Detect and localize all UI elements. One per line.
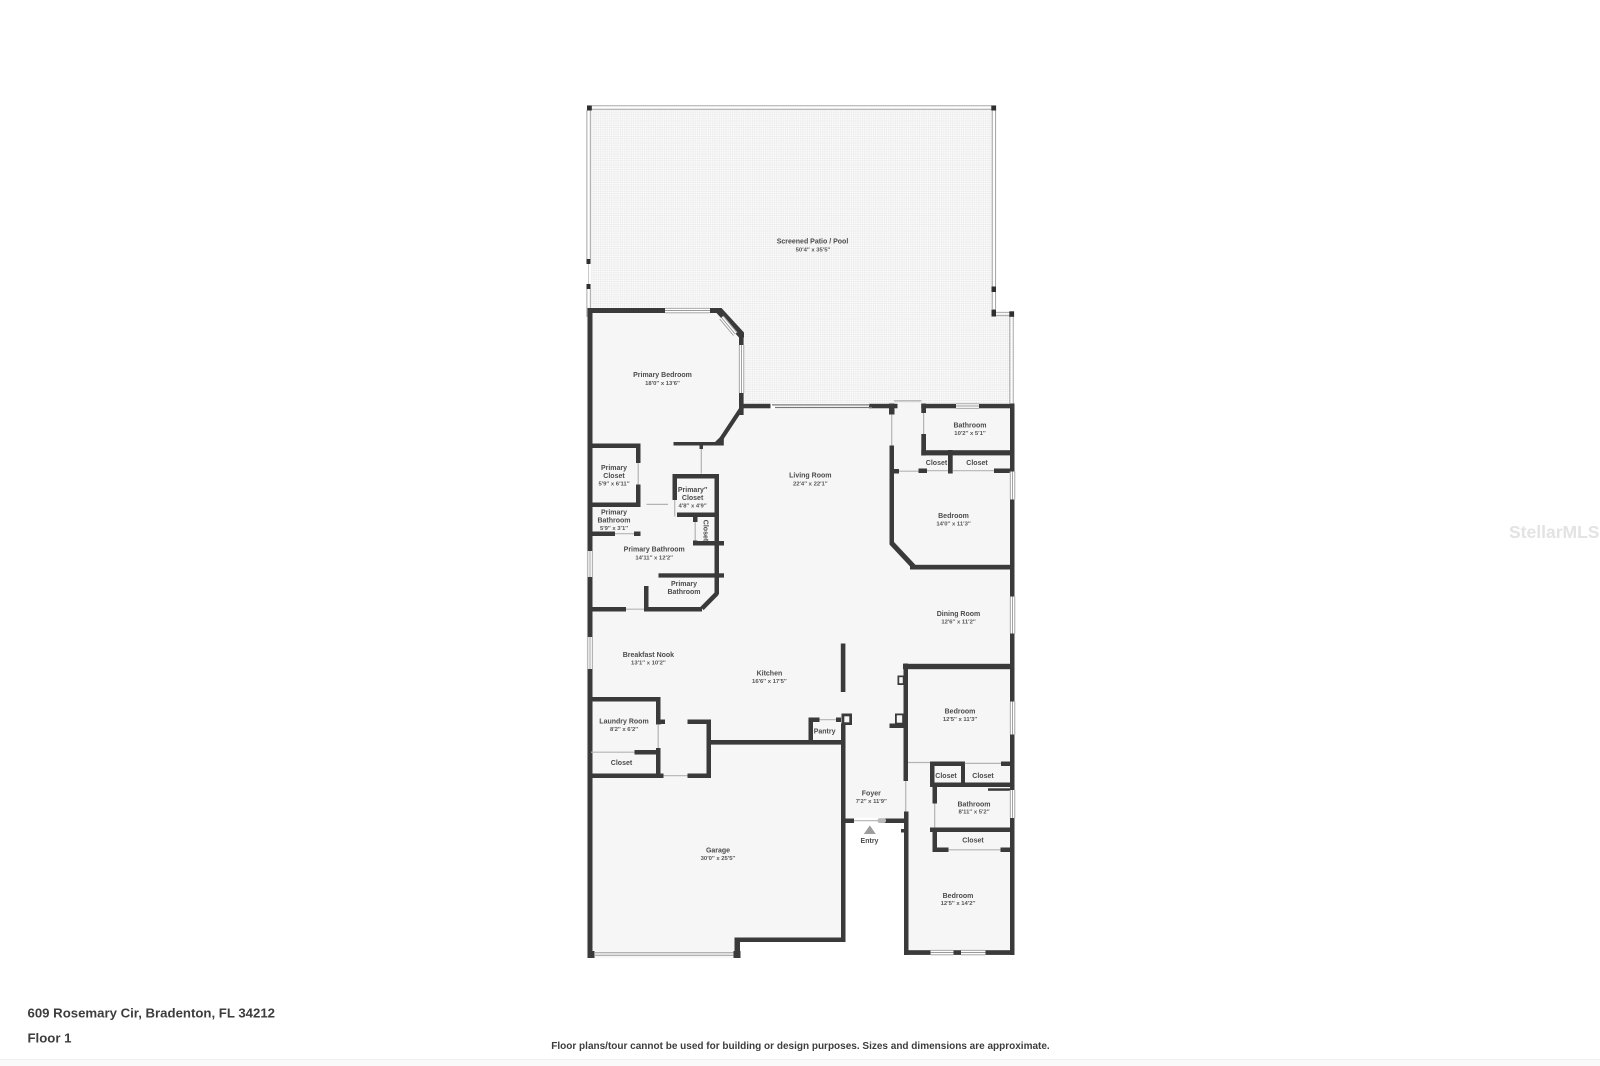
svg-text:Floor plans/tour cannot be use: Floor plans/tour cannot be used for buil… (551, 1041, 1050, 1052)
svg-text:Dining Room: Dining Room (937, 611, 981, 618)
svg-text:Closet: Closet (926, 460, 948, 467)
svg-text:Bedroom: Bedroom (938, 513, 969, 520)
svg-text:Bedroom: Bedroom (943, 893, 974, 900)
svg-text:Primary: Primary (601, 465, 627, 472)
svg-text:Closet: Closet (603, 473, 625, 480)
svg-text:StellarMLS: StellarMLS (1509, 522, 1599, 542)
svg-text:Primary: Primary (601, 510, 627, 517)
svg-text:Bathroom: Bathroom (953, 423, 986, 430)
svg-text:12′5″ x 14′2″: 12′5″ x 14′2″ (941, 901, 976, 907)
svg-text:Bathroom: Bathroom (667, 589, 700, 596)
svg-text:Closet: Closet (935, 773, 957, 780)
svg-text:14′11″ x 12′2″: 14′11″ x 12′2″ (635, 556, 673, 562)
svg-text:12′6″ x 11′2″: 12′6″ x 11′2″ (941, 620, 976, 626)
svg-text:13′1″ x 10′2″: 13′1″ x 10′2″ (631, 661, 666, 667)
svg-text:7′2″ x 11′9″: 7′2″ x 11′9″ (856, 799, 887, 805)
svg-text:22′4″ x 22′1″: 22′4″ x 22′1″ (793, 482, 828, 488)
svg-text:Closet: Closet (972, 773, 994, 780)
svg-text:Primary Bathroom: Primary Bathroom (624, 547, 685, 554)
svg-text:609 Rosemary Cir, Bradenton, F: 609 Rosemary Cir, Bradenton, FL 34212 (28, 1006, 276, 1021)
svg-text:Closet: Closet (701, 520, 708, 542)
svg-text:4′8″ x 4′9″: 4′8″ x 4′9″ (679, 504, 707, 510)
svg-text:30′0″ x 25′5″: 30′0″ x 25′5″ (701, 856, 736, 862)
svg-text:8′11″ x 5′2″: 8′11″ x 5′2″ (958, 810, 989, 816)
svg-text:Closet: Closet (682, 495, 704, 502)
svg-text:Bathroom: Bathroom (597, 518, 630, 525)
svg-text:18′0″ x 13′6″: 18′0″ x 13′6″ (645, 381, 680, 387)
svg-text:Closet: Closet (611, 760, 633, 767)
svg-text:5′9″ x 3′1″: 5′9″ x 3′1″ (600, 526, 628, 532)
svg-text:Laundry Room: Laundry Room (599, 719, 648, 726)
svg-text:14′0″ x 11′3″: 14′0″ x 11′3″ (936, 522, 971, 528)
svg-text:Screened Patio / Pool: Screened Patio / Pool (777, 239, 849, 246)
svg-text:Closet: Closet (962, 838, 984, 845)
svg-text:12′5″ x 11′3″: 12′5″ x 11′3″ (943, 717, 978, 723)
svg-text:Primary: Primary (671, 581, 697, 588)
svg-text:Entry: Entry (861, 838, 879, 845)
svg-text:Primary Bedroom: Primary Bedroom (633, 372, 692, 379)
svg-text:Bedroom: Bedroom (945, 709, 976, 716)
svg-text:Pantry: Pantry (814, 729, 836, 736)
svg-text:16′6″ x 17′5″: 16′6″ x 17′5″ (752, 679, 787, 685)
svg-text:Bathroom: Bathroom (957, 802, 990, 809)
svg-text:10′2″ x 5′1″: 10′2″ x 5′1″ (954, 431, 986, 437)
svg-text:Kitchen: Kitchen (757, 671, 783, 678)
svg-text:50′4″ x 35′5″: 50′4″ x 35′5″ (796, 248, 831, 254)
svg-text:8′2″ x 6′2″: 8′2″ x 6′2″ (610, 727, 638, 733)
svg-text:Floor 1: Floor 1 (28, 1031, 72, 1046)
svg-text:Foyer: Foyer (862, 791, 881, 798)
svg-text:Closet: Closet (966, 460, 988, 467)
svg-text:5′9″ x 6′11″: 5′9″ x 6′11″ (598, 482, 629, 488)
svg-text:Garage: Garage (706, 848, 730, 855)
svg-text:Living Room: Living Room (789, 473, 831, 480)
svg-text:Breakfast Nook: Breakfast Nook (623, 652, 674, 659)
svg-text:Primary″: Primary″ (678, 487, 708, 494)
